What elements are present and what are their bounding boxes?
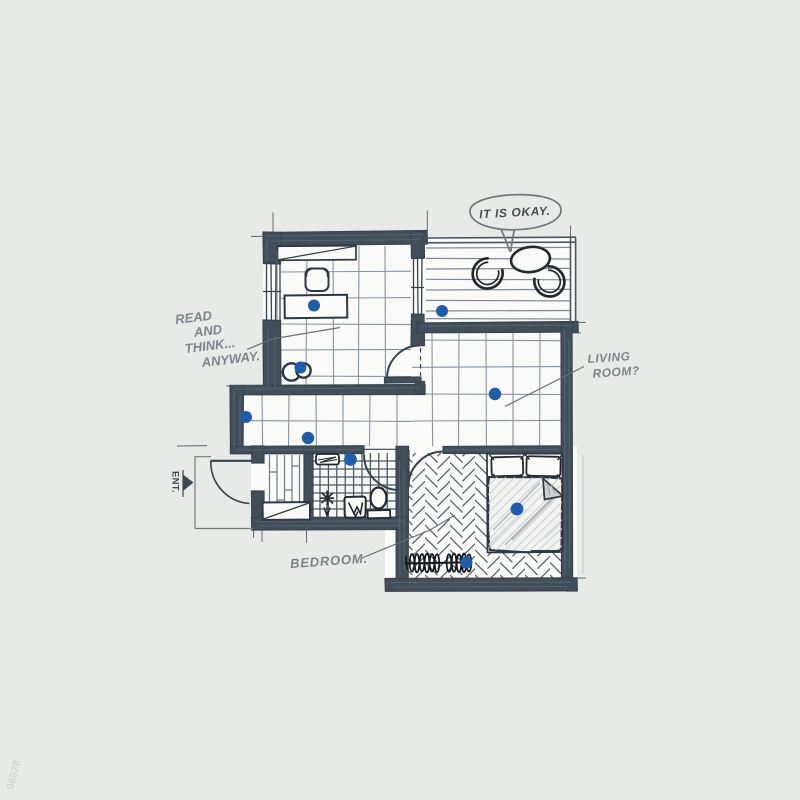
svg-text:ENT.: ENT. xyxy=(170,471,181,493)
svg-text:LIVING: LIVING xyxy=(587,349,631,366)
